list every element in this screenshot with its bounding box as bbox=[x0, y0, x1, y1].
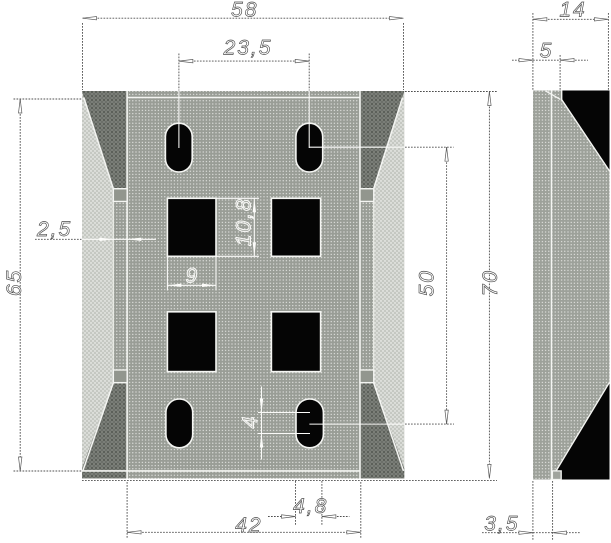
svg-text:5: 5 bbox=[540, 40, 554, 63]
svg-text:3,5: 3,5 bbox=[484, 513, 519, 536]
svg-text:2,5: 2,5 bbox=[36, 218, 72, 241]
svg-text:58: 58 bbox=[231, 0, 258, 22]
svg-text:65: 65 bbox=[3, 269, 26, 296]
svg-text:14: 14 bbox=[559, 0, 586, 22]
svg-text:23,5: 23,5 bbox=[223, 37, 273, 60]
svg-text:9: 9 bbox=[186, 265, 200, 288]
svg-text:42: 42 bbox=[235, 514, 262, 537]
svg-text:50: 50 bbox=[416, 269, 439, 296]
svg-text:4: 4 bbox=[239, 415, 262, 429]
svg-text:10,8: 10,8 bbox=[233, 197, 256, 246]
svg-text:4,8: 4,8 bbox=[293, 495, 328, 518]
svg-text:70: 70 bbox=[479, 269, 502, 296]
